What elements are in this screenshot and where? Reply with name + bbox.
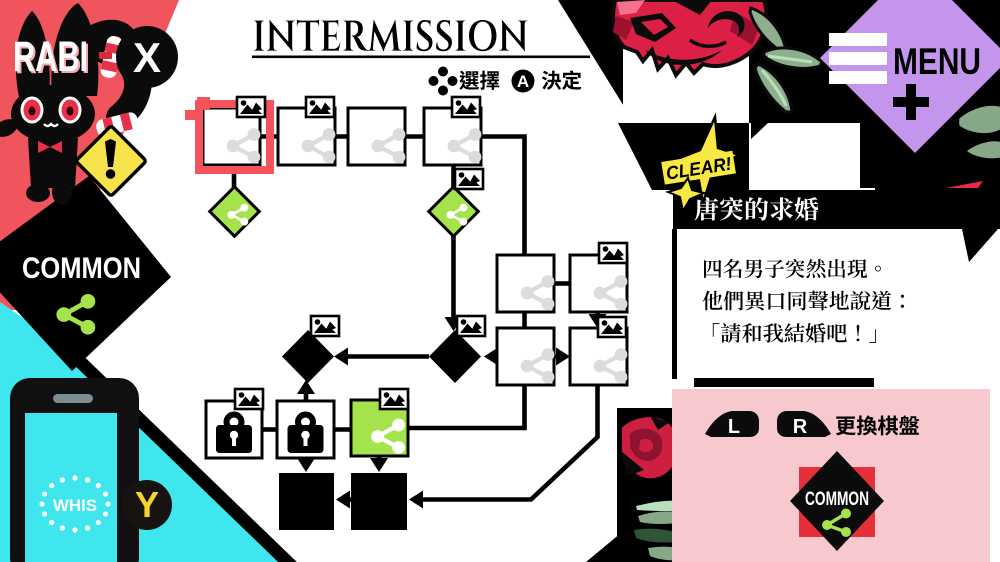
svg-text:X: X: [133, 34, 161, 81]
svg-text:R: R: [793, 416, 808, 438]
svg-text:Y: Y: [135, 484, 159, 525]
svg-text:A: A: [517, 72, 529, 91]
svg-text:RABI: RABI: [13, 33, 88, 81]
svg-text:MENU: MENU: [893, 41, 981, 82]
svg-text:COMMON: COMMON: [22, 252, 141, 285]
svg-text:WHIS: WHIS: [53, 496, 97, 515]
svg-text:COMMON: COMMON: [805, 489, 869, 510]
svg-text:L: L: [728, 416, 740, 438]
